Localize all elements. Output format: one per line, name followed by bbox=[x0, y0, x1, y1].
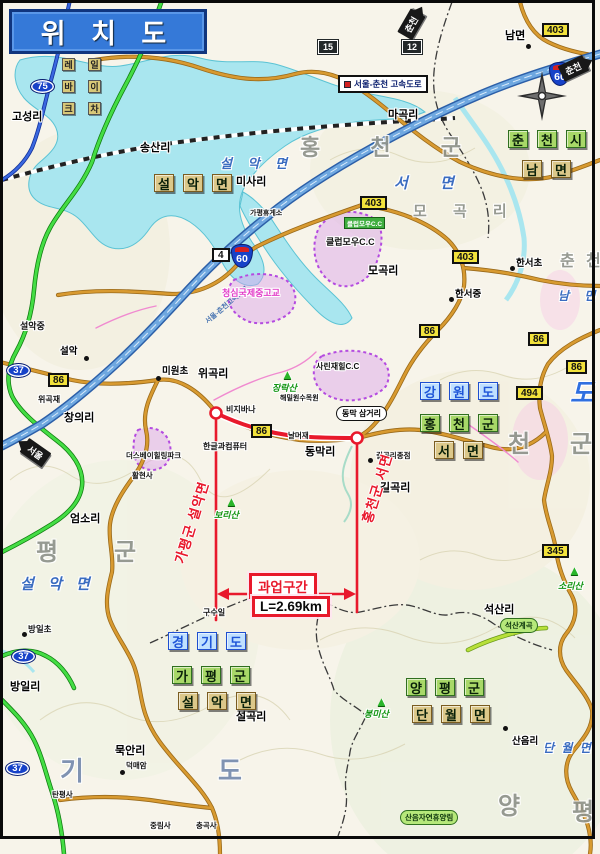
expressway-label-text: 서울-춘천 고속도로 bbox=[354, 78, 422, 90]
yangpyeong-big-yang: 양 bbox=[498, 794, 520, 819]
poi-chunggoksa-temple: 충곡사 bbox=[196, 822, 217, 830]
route-403-badge: 403 bbox=[542, 23, 569, 37]
poi-tanpyeongsa-temple: 탄평사 bbox=[52, 791, 73, 799]
attraction-tile: 이 bbox=[88, 80, 101, 93]
region-tile: 남 bbox=[522, 160, 542, 178]
route-4-badge: 4 bbox=[212, 248, 230, 262]
school-marker-dot bbox=[510, 266, 515, 271]
region-tile: 강 bbox=[420, 382, 440, 400]
mountain-icon: ▲ bbox=[568, 563, 581, 578]
region-tile: 춘 bbox=[508, 130, 528, 148]
hongcheon-big-gun: 군 bbox=[570, 432, 592, 457]
region-tile: 원 bbox=[449, 382, 469, 400]
project-start-point bbox=[211, 408, 222, 419]
route-345-badge: 345 bbox=[542, 544, 569, 558]
region-seorak-myeon-north: 설 악 면 bbox=[154, 174, 232, 192]
town-marker-dot bbox=[526, 44, 531, 49]
region-tile: 가 bbox=[172, 666, 192, 684]
region-chuncheon-si: 춘 천 시 bbox=[508, 130, 586, 148]
mountain-icon: ▲ bbox=[225, 494, 238, 509]
seorak-myeon-blue-west: 설 악 면 bbox=[20, 577, 95, 593]
region-tile: 설 bbox=[178, 692, 198, 710]
project-end-point bbox=[352, 433, 363, 444]
gyeonggi-big-do: 도 bbox=[218, 758, 242, 785]
gyeonggi-big-gi: 기 bbox=[60, 758, 84, 785]
region-tile: 설 bbox=[154, 174, 174, 192]
route-37-badge: 37 bbox=[5, 761, 30, 776]
poi-hangeul-computer: 한글과컴퓨터 bbox=[203, 443, 247, 451]
map-title: 위 치 도 bbox=[9, 9, 207, 54]
route-86-badge: 86 bbox=[419, 324, 440, 338]
project-length-label: L=2.69km bbox=[252, 596, 330, 617]
attraction-tile: 레 bbox=[62, 58, 75, 71]
town-marker-dot bbox=[503, 726, 508, 731]
mountain-jangnaksan: 장락산 bbox=[272, 384, 297, 393]
attraction-tile: 바 bbox=[62, 80, 75, 93]
yangpyeong-big-pyeong: 평 bbox=[572, 800, 594, 825]
poi-thespa-healing-park: 더스베이힐링파크 bbox=[126, 452, 181, 460]
attraction-tile: 일 bbox=[88, 58, 101, 71]
poi-saneum-forest: 산음자연휴양림 bbox=[400, 810, 458, 825]
region-nam-myeon: 남 면 bbox=[522, 160, 571, 178]
hongcheon-gun-spread: 홍 천 군 bbox=[300, 136, 483, 159]
region-tile: 면 bbox=[470, 705, 490, 723]
mogok-ri-spread: 모 곡 리 bbox=[413, 204, 518, 220]
region-tile: 천 bbox=[449, 414, 469, 432]
school-miwon-elementary: 미원초 bbox=[162, 367, 188, 377]
school-hanseo-middle: 한서중 bbox=[455, 290, 481, 300]
town-marker-dot bbox=[84, 356, 89, 361]
region-tile: 서 bbox=[434, 441, 454, 459]
town-dongmak-ri: 동막리 bbox=[305, 447, 335, 459]
region-tile: 기 bbox=[197, 632, 217, 650]
school-seorak-middle: 설악중 bbox=[20, 322, 45, 331]
region-tile: 단 bbox=[412, 705, 432, 723]
attraction-tile: 크 bbox=[62, 102, 75, 115]
poi-haemilwon-arboretum: 해밀원수목원 bbox=[280, 395, 319, 402]
hongcheon-big-cheon: 천 bbox=[508, 432, 530, 457]
region-tile: 천 bbox=[537, 130, 557, 148]
region-seorak-myeon-south: 설 악 면 bbox=[178, 692, 256, 710]
region-tile: 홍 bbox=[420, 414, 440, 432]
town-magok-ri: 마곡리 bbox=[388, 110, 418, 122]
poi-cheongsim-school: 청심국제중고교 bbox=[222, 289, 280, 298]
route-86-badge: 86 bbox=[251, 424, 272, 438]
poi-bijibana: 비지바나 bbox=[226, 406, 255, 414]
region-tile: 악 bbox=[183, 174, 203, 192]
town-seolgok-ri: 설곡리 bbox=[236, 712, 266, 724]
map-graphics bbox=[0, 0, 600, 854]
town-misa-ri: 미사리 bbox=[236, 177, 266, 189]
region-gapyeong-gun: 가 평 군 bbox=[172, 666, 250, 684]
town-seorak: 설악 bbox=[60, 347, 77, 357]
route-12-badge: 12 bbox=[402, 40, 422, 54]
poi-marker-dot bbox=[120, 770, 125, 775]
region-gyeonggi-do: 경 기 도 bbox=[168, 632, 246, 650]
region-tile: 평 bbox=[201, 666, 221, 684]
danwol-myeon-blue: 단 월 면 bbox=[543, 742, 593, 755]
chuncheon-big-chun: 춘 bbox=[560, 254, 575, 271]
gapyeong-big-pyeong: 평 bbox=[36, 540, 58, 565]
poi-gapyeong-rest-area: 가평휴게소 bbox=[250, 210, 282, 217]
gangwon-big-do: 도 bbox=[570, 380, 594, 407]
mountain-bongmisan: 봉미산 bbox=[364, 710, 389, 719]
town-bangil-ri: 방일리 bbox=[10, 682, 40, 694]
expressway-label: 서울-춘천 고속도로 bbox=[338, 75, 428, 93]
region-hongcheon-gun: 홍 천 군 bbox=[420, 414, 498, 432]
route-86-badge: 86 bbox=[528, 332, 549, 346]
town-nam-myeon: 남면 bbox=[505, 31, 525, 43]
region-tile: 도 bbox=[226, 632, 246, 650]
route-403-badge: 403 bbox=[360, 196, 387, 210]
sarinjaehil-cc-zone bbox=[314, 351, 389, 401]
poi-clubmow-cc-tag: 클럽모우C.C bbox=[344, 217, 385, 229]
town-wigok-ri: 위곡리 bbox=[198, 369, 228, 381]
region-tile: 경 bbox=[168, 632, 188, 650]
route-403-badge: 403 bbox=[452, 250, 479, 264]
poi-clubmow-cc: 클럽모우C.C bbox=[326, 238, 375, 247]
poi-deokmaeam: 덕매암 bbox=[126, 762, 147, 770]
region-tile: 군 bbox=[230, 666, 250, 684]
seorak-myeon-blue-north: 설 악 면 bbox=[220, 157, 293, 171]
region-tile: 악 bbox=[207, 692, 227, 710]
region-tile: 면 bbox=[212, 174, 232, 192]
attraction-tile: 차 bbox=[88, 102, 101, 115]
mountain-icon: ▲ bbox=[281, 367, 294, 382]
region-tile: 양 bbox=[406, 678, 426, 696]
town-eomso-ri: 엄소리 bbox=[70, 514, 100, 526]
route-494-badge: 494 bbox=[516, 386, 543, 400]
region-danwol-myeon: 단 월 면 bbox=[412, 705, 490, 723]
region-gangwon-do: 강 원 도 bbox=[420, 382, 498, 400]
town-songsan-ri: 송산리 bbox=[140, 143, 170, 155]
region-tile: 군 bbox=[464, 678, 484, 696]
route-15-badge: 15 bbox=[318, 40, 338, 54]
chuncheon-big-cheon: 천 bbox=[586, 254, 600, 271]
region-tile: 면 bbox=[236, 692, 256, 710]
school-hanseo-elementary: 한서초 bbox=[516, 259, 542, 269]
expressway-icon bbox=[344, 81, 351, 88]
route-86-badge: 86 bbox=[48, 373, 69, 387]
poi-nalmeojae-pass: 날머재 bbox=[288, 432, 309, 440]
school-marker-dot bbox=[449, 297, 454, 302]
poi-wigokjae-pass: 위곡재 bbox=[38, 396, 60, 404]
region-seo-myeon: 서 면 bbox=[434, 441, 483, 459]
region-tile: 면 bbox=[463, 441, 483, 459]
region-tile: 월 bbox=[441, 705, 461, 723]
poi-gusuil: 구수일 bbox=[203, 609, 225, 617]
region-tile: 평 bbox=[435, 678, 455, 696]
seo-myeon-spread: 서 면 bbox=[394, 176, 468, 192]
town-changui-ri: 창의리 bbox=[64, 413, 94, 425]
mountain-sorisan: 소리산 bbox=[558, 582, 583, 591]
town-mukan-ri: 묵안리 bbox=[115, 746, 145, 758]
mountain-icon: ▲ bbox=[375, 694, 388, 709]
gapyeong-big-gun: 군 bbox=[114, 540, 136, 565]
town-goseong-ri: 고성리 bbox=[12, 112, 42, 124]
school-bangil-elementary: 방일초 bbox=[28, 625, 51, 634]
region-tile: 도 bbox=[478, 382, 498, 400]
region-tile: 면 bbox=[551, 160, 571, 178]
route-37-badge: 37 bbox=[11, 649, 36, 664]
location-map: 위 치 도 서울-춘천 고속도로 서울-춘천고속도로 춘천 춘천 서울 403 … bbox=[0, 0, 600, 854]
poi-dongmak-junction: 동막 삼거리 bbox=[336, 406, 387, 421]
town-seoksan-ri: 석산리 bbox=[484, 605, 514, 617]
town-mogok-ri: 모곡리 bbox=[368, 266, 398, 278]
school-marker-dot bbox=[22, 632, 27, 637]
poi-hwalhyeonsa-temple: 활현사 bbox=[132, 472, 153, 480]
region-yangpyeong-gun: 양 평 군 bbox=[406, 678, 484, 696]
mountain-borisan: 보리산 bbox=[214, 511, 239, 520]
thespa-zone bbox=[134, 428, 171, 470]
route-37-badge: 37 bbox=[6, 363, 31, 378]
region-tile: 시 bbox=[566, 130, 586, 148]
nam-myeon-right: 남 면 bbox=[558, 290, 600, 303]
route-75-badge: 75 bbox=[30, 79, 55, 94]
school-marker-dot bbox=[156, 376, 161, 381]
region-tile: 군 bbox=[478, 414, 498, 432]
poi-sarinjaehil-cc: 사린재힐C.C bbox=[316, 363, 359, 371]
route-86-badge: 86 bbox=[566, 360, 587, 374]
town-saneum-ri: 산음리 bbox=[512, 737, 538, 747]
poi-jungnimsa-temple: 중림사 bbox=[150, 822, 171, 830]
poi-seoksan-valley: 석산계곡 bbox=[500, 618, 538, 633]
